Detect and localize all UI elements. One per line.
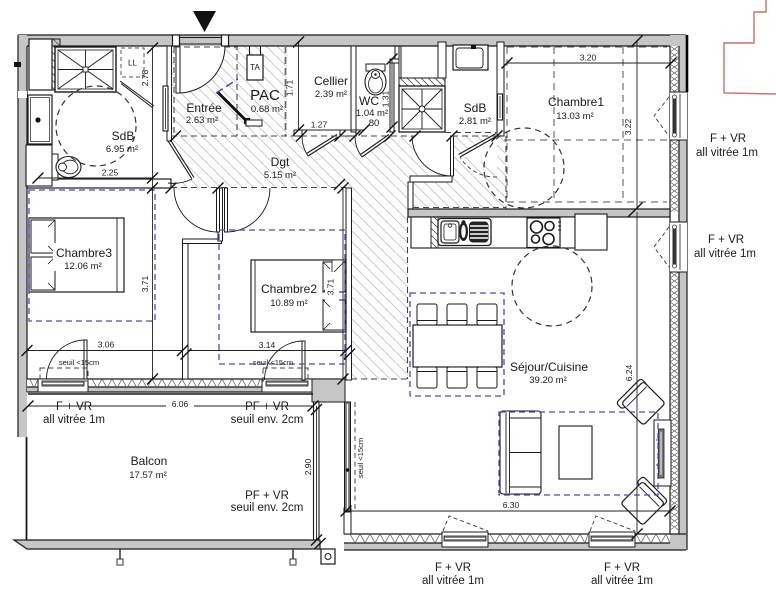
- svg-text:all vitrée 1m: all vitrée 1m: [591, 575, 653, 587]
- svg-text:all vitrée 1m: all vitrée 1m: [696, 147, 758, 159]
- svg-text:Dgt: Dgt: [271, 155, 290, 169]
- svg-text:seuil <15cm: seuil <15cm: [59, 358, 99, 367]
- svg-text:PF + VR: PF + VR: [245, 401, 289, 413]
- svg-text:2.81 m²: 2.81 m²: [459, 116, 491, 127]
- svg-text:seuil env. 2cm: seuil env. 2cm: [231, 502, 304, 514]
- svg-text:all vitrée 1m: all vitrée 1m: [43, 414, 105, 426]
- svg-text:all vitrée 1m: all vitrée 1m: [694, 248, 756, 260]
- svg-text:SdB: SdB: [464, 101, 487, 115]
- svg-text:6.30: 6.30: [503, 500, 520, 510]
- svg-text:3.14: 3.14: [259, 340, 276, 350]
- svg-text:3.71: 3.71: [326, 278, 336, 295]
- svg-text:2.90: 2.90: [303, 458, 313, 475]
- svg-text:12.06 m²: 12.06 m²: [64, 261, 102, 272]
- svg-text:Séjour/Cuisine: Séjour/Cuisine: [510, 360, 588, 374]
- svg-text:seuil env. 2cm: seuil env. 2cm: [231, 414, 304, 426]
- svg-text:F + VR: F + VR: [604, 562, 640, 574]
- svg-text:LL: LL: [128, 59, 137, 68]
- svg-text:seuil <15cm: seuil <15cm: [253, 358, 293, 367]
- svg-text:1.31: 1.31: [381, 90, 391, 107]
- svg-text:1.27: 1.27: [311, 120, 328, 130]
- svg-text:WC: WC: [359, 94, 379, 108]
- svg-text:6.06: 6.06: [172, 399, 189, 409]
- svg-text:3.22: 3.22: [623, 118, 633, 135]
- svg-text:all vitrée 1m: all vitrée 1m: [422, 575, 484, 587]
- svg-text:80: 80: [369, 118, 380, 129]
- svg-text:6.95 m²: 6.95 m²: [106, 144, 138, 155]
- svg-text:F + VR: F + VR: [710, 133, 746, 145]
- svg-text:2.39 m²: 2.39 m²: [315, 89, 347, 100]
- svg-text:Cellier: Cellier: [314, 74, 348, 88]
- svg-text:PF + VR: PF + VR: [245, 490, 289, 502]
- svg-text:Chambre1: Chambre1: [548, 95, 604, 109]
- svg-text:Chambre3: Chambre3: [56, 246, 112, 260]
- svg-text:seuil <15cm: seuil <15cm: [356, 438, 365, 478]
- svg-text:17.57 m²: 17.57 m²: [129, 470, 167, 481]
- svg-text:Chambre2: Chambre2: [261, 282, 317, 296]
- svg-text:F + VR: F + VR: [56, 401, 92, 413]
- svg-text:13.03 m²: 13.03 m²: [556, 111, 594, 122]
- svg-text:3.71: 3.71: [140, 275, 150, 292]
- svg-text:Balcon: Balcon: [131, 454, 168, 468]
- svg-text:2.25: 2.25: [102, 168, 119, 178]
- svg-text:3.06: 3.06: [98, 340, 115, 350]
- svg-text:2.78: 2.78: [140, 69, 150, 86]
- svg-text:PAC: PAC: [250, 87, 280, 104]
- svg-text:Entrée: Entrée: [186, 101, 222, 115]
- svg-text:F + VR: F + VR: [708, 234, 744, 246]
- svg-text:6.24: 6.24: [624, 364, 634, 381]
- svg-text:5.15 m²: 5.15 m²: [264, 170, 296, 181]
- svg-text:1.71: 1.71: [285, 79, 295, 96]
- svg-text:F + VR: F + VR: [435, 562, 471, 574]
- svg-text:0.68 m²: 0.68 m²: [251, 104, 283, 115]
- svg-text:2.63 m²: 2.63 m²: [186, 115, 218, 126]
- svg-text:3.20: 3.20: [580, 53, 597, 63]
- svg-text:10.89 m²: 10.89 m²: [270, 298, 308, 309]
- svg-text:SdB: SdB: [112, 129, 135, 143]
- svg-text:39.20 m²: 39.20 m²: [529, 375, 567, 386]
- svg-text:TA: TA: [250, 63, 260, 72]
